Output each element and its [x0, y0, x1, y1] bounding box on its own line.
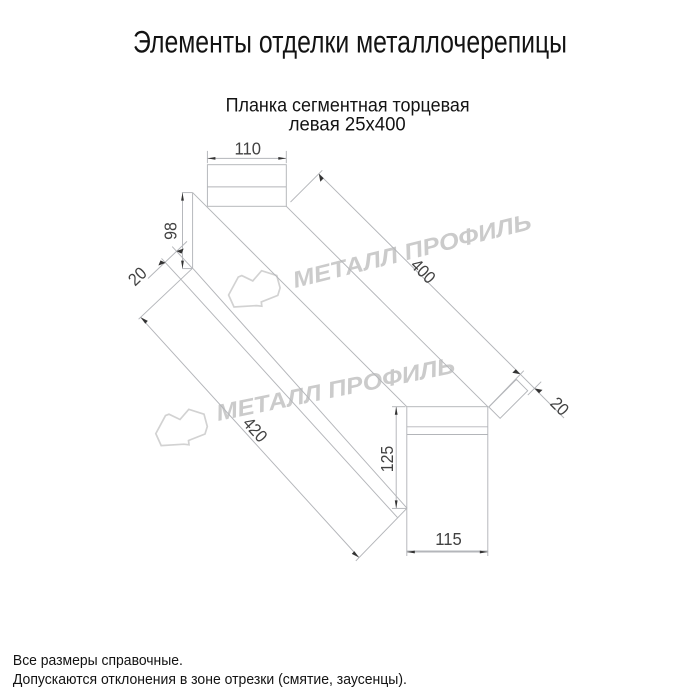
svg-text:левая 25х400: левая 25х400: [289, 114, 406, 136]
svg-text:98: 98: [160, 222, 180, 240]
svg-text:115: 115: [435, 529, 462, 549]
svg-text:Допускаются отклонения в зоне: Допускаются отклонения в зоне отрезки (с…: [13, 671, 407, 688]
svg-text:Все размеры справочные.: Все размеры справочные.: [13, 652, 183, 669]
svg-text:110: 110: [235, 139, 262, 159]
svg-text:Элементы отделки металлочерепи: Элементы отделки металлочерепицы: [133, 24, 567, 60]
svg-text:125: 125: [377, 446, 397, 473]
